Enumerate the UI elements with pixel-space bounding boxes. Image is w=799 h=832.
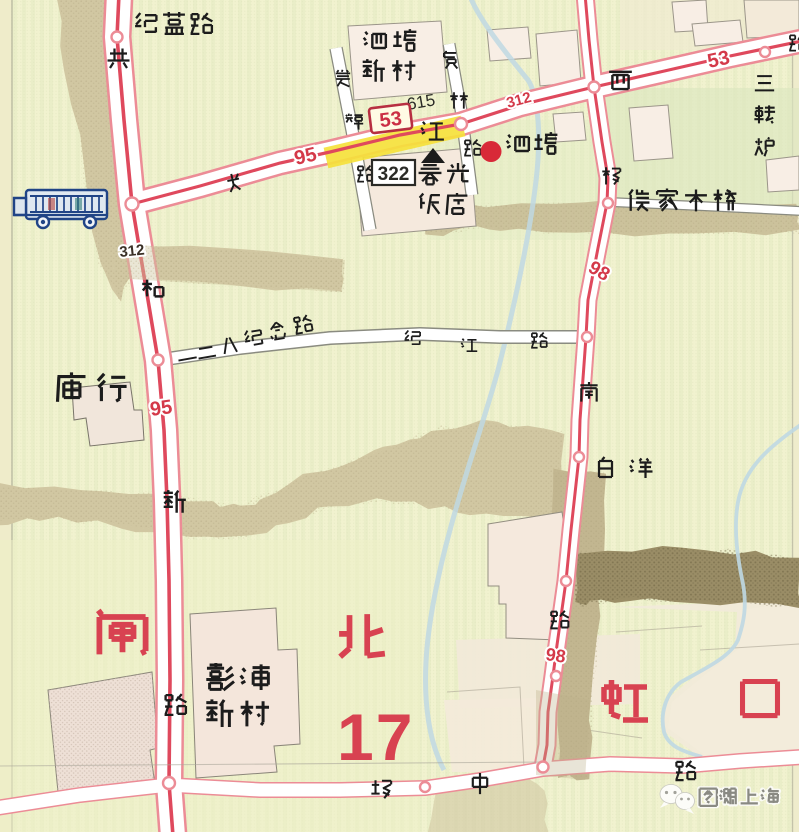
svg-text:17: 17 (337, 700, 414, 774)
svg-text:312: 312 (119, 241, 146, 261)
svg-text:95: 95 (149, 396, 174, 421)
svg-text:98: 98 (544, 644, 567, 667)
svg-text:53: 53 (705, 47, 731, 73)
svg-text:322: 322 (378, 164, 410, 185)
svg-text:53: 53 (378, 108, 403, 133)
